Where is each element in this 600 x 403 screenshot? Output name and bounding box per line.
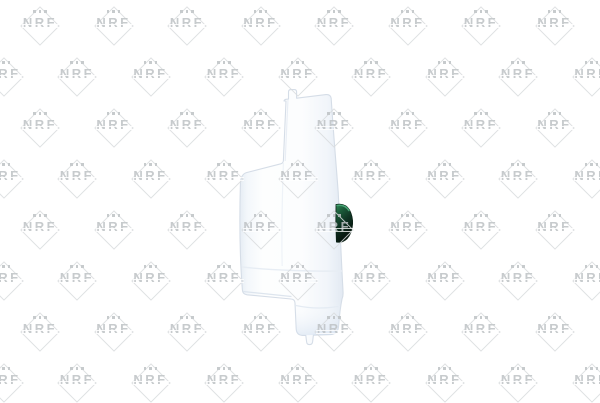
foot-shading [295, 300, 342, 335]
product-photo: NRFNRFNRFNRFNRFNRFNRFNRFNRFNRFNRFNRFNRFN… [0, 0, 600, 400]
sensor-cap [336, 204, 353, 242]
product-image [0, 0, 600, 400]
